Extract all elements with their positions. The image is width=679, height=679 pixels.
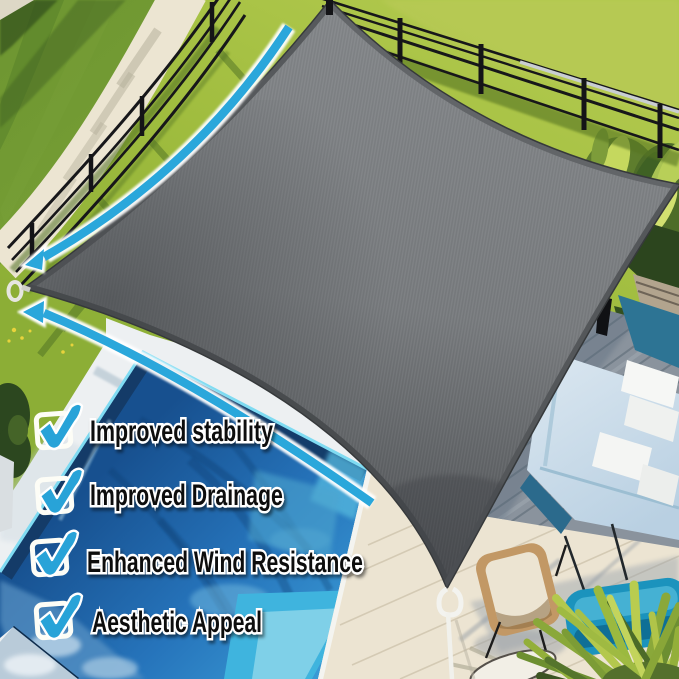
svg-text:Improved stability: Improved stability	[90, 413, 273, 448]
svg-text:Improved Drainage: Improved Drainage	[90, 477, 283, 512]
svg-text:Enhanced Wind Resistance: Enhanced Wind Resistance	[87, 547, 363, 579]
svg-text:Aesthetic Appeal: Aesthetic Appeal	[92, 607, 262, 639]
